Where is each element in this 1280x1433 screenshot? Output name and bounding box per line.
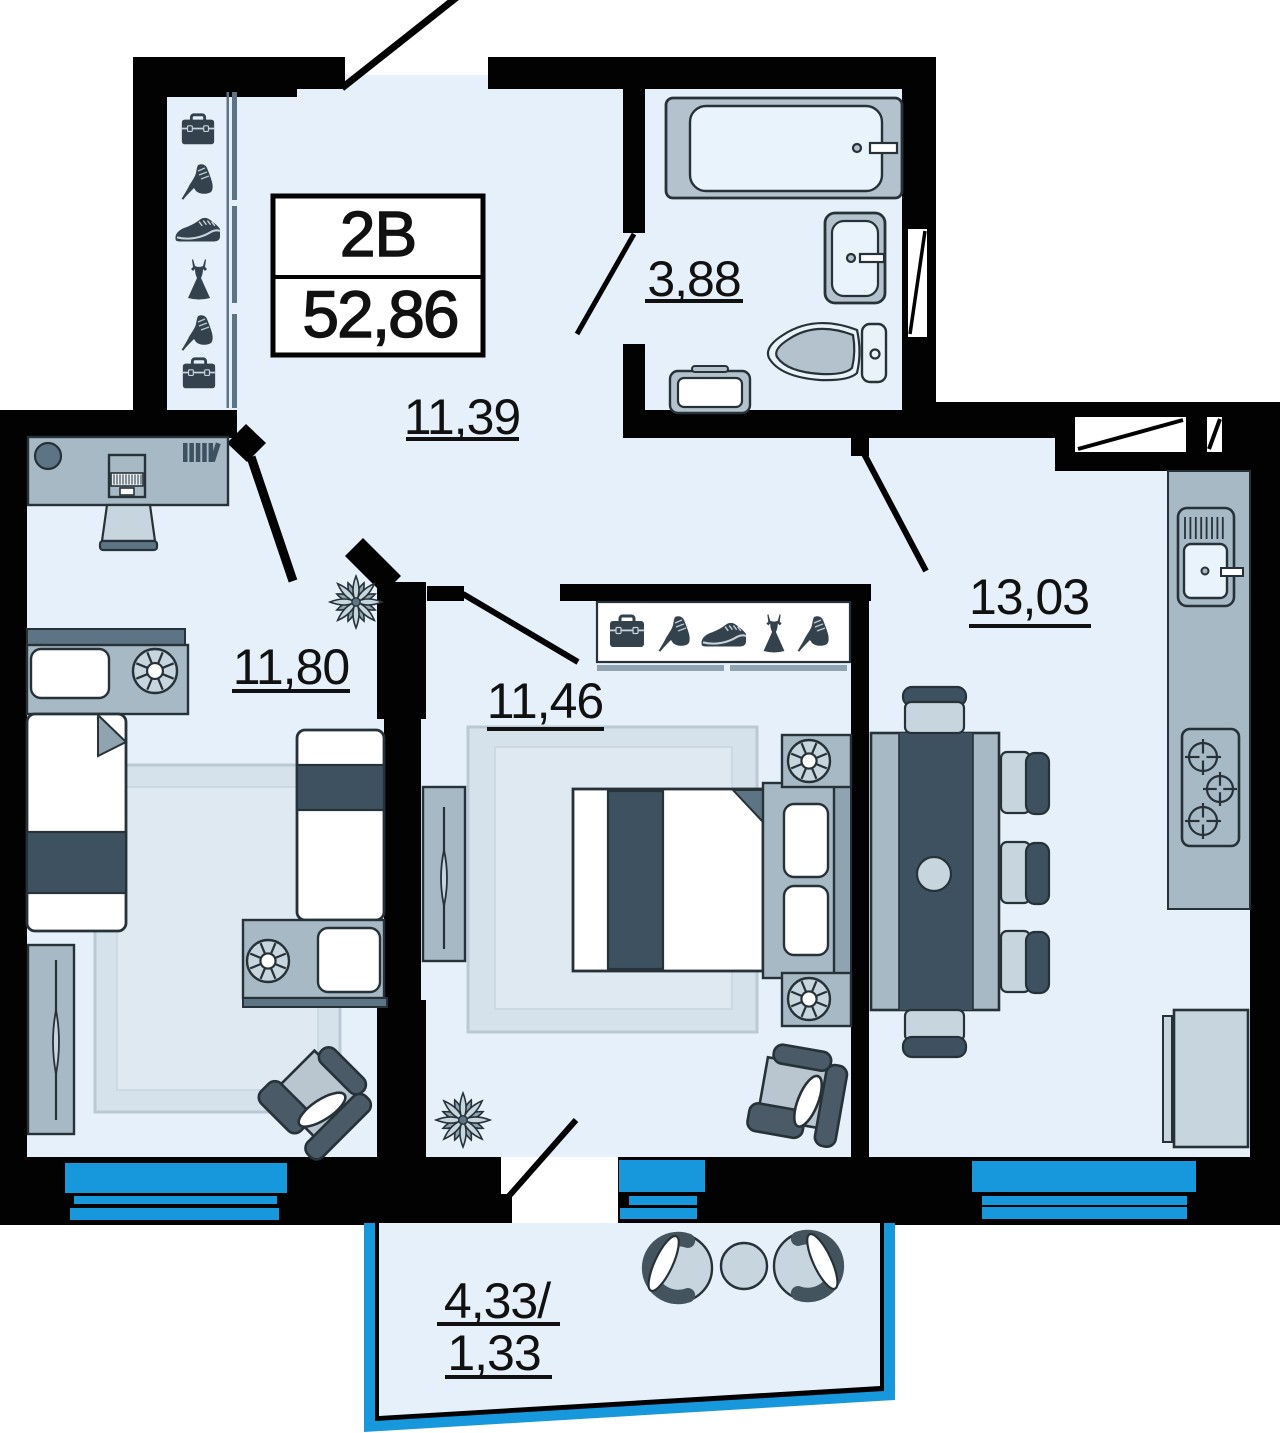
svg-text:1,33: 1,33 bbox=[447, 1325, 540, 1381]
svg-text:11,46: 11,46 bbox=[487, 673, 603, 729]
svg-text:11,39: 11,39 bbox=[404, 389, 520, 445]
svg-text:3,88: 3,88 bbox=[647, 251, 740, 307]
svg-text:2В: 2В bbox=[340, 198, 416, 270]
svg-text:52,86: 52,86 bbox=[302, 277, 457, 351]
svg-text:4,33/: 4,33/ bbox=[444, 1273, 551, 1329]
svg-text:13,03: 13,03 bbox=[969, 569, 1089, 625]
svg-text:11,80: 11,80 bbox=[233, 639, 349, 695]
